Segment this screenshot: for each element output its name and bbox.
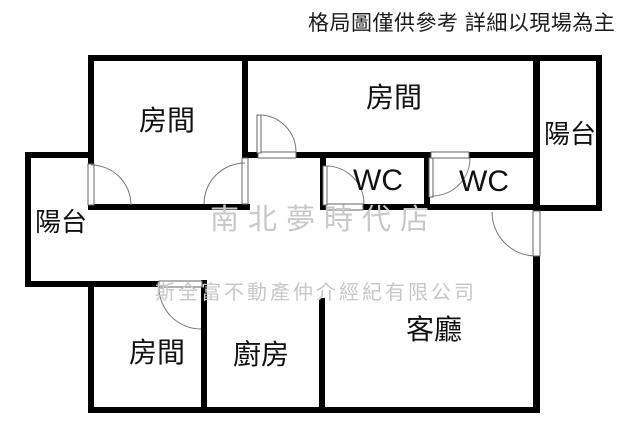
door-bedroom1 bbox=[204, 158, 248, 204]
door-arc bbox=[259, 115, 296, 152]
room-label-kitchen: 廚房 bbox=[233, 341, 289, 369]
wall-segment-top bbox=[88, 55, 602, 61]
wall-segment-balcony-left-top bbox=[25, 152, 94, 158]
wall-segment-right-lower bbox=[533, 256, 540, 413]
door-balcony-left bbox=[88, 164, 131, 205]
door-opening bbox=[533, 211, 540, 256]
door-leaf bbox=[257, 115, 261, 153]
wall-segment-balcony-left-wall bbox=[25, 152, 31, 287]
floor-plan-image: 格局圖僅供參考 詳細以現場為主 南北夢時代店 斯全富不動產仲介經紀有限公司 房間… bbox=[0, 0, 640, 448]
wall-segment-bed1-bed2-divider bbox=[242, 55, 248, 152]
wall-segment-bed3-top bbox=[88, 281, 160, 287]
wall-segment-bottom bbox=[88, 407, 540, 413]
room-label-bedroom-bottom: 房間 bbox=[129, 339, 185, 367]
wall-segment-bed1-left bbox=[88, 55, 94, 165]
room-label-wc-right: WC bbox=[459, 167, 509, 197]
room-label-bedroom-top-left: 房間 bbox=[139, 107, 195, 135]
wall-segment-right-upper bbox=[533, 55, 540, 212]
room-label-balcony-left: 陽台 bbox=[35, 209, 87, 235]
watermark-company-name: 斯全富不動產仲介經紀有限公司 bbox=[155, 283, 477, 303]
room-label-bedroom-top-right: 房間 bbox=[366, 84, 422, 112]
door-leaf bbox=[323, 166, 327, 205]
door-bedroom2 bbox=[257, 115, 296, 158]
room-label-balcony-right: 陽台 bbox=[544, 121, 596, 147]
door-arc bbox=[204, 163, 245, 204]
door-opening bbox=[88, 164, 94, 205]
disclaimer-text: 格局圖僅供參考 詳細以現場為主 bbox=[308, 13, 608, 34]
wall-segment-balcony-right-bottom bbox=[533, 205, 602, 211]
door-opening bbox=[258, 152, 296, 158]
wall-segment-bed2-bottom-b bbox=[296, 152, 432, 158]
watermark-store-name: 南北夢時代店 bbox=[210, 206, 438, 235]
wall-segment-balcony-right-wall bbox=[596, 55, 602, 211]
door-arc bbox=[492, 212, 536, 256]
door-leaf bbox=[429, 158, 433, 197]
room-label-living-room: 客廳 bbox=[406, 316, 462, 344]
wall-segment-kitchen-living-divider bbox=[319, 298, 325, 413]
door-opening bbox=[242, 158, 248, 204]
room-label-wc-left: WC bbox=[353, 166, 403, 196]
wall-segment-balcony-left-bottom bbox=[25, 281, 91, 287]
wall-segment-bed2-bottom-c bbox=[468, 152, 540, 158]
door-opening bbox=[431, 152, 469, 158]
door-arc bbox=[91, 165, 131, 205]
door-main-entry bbox=[492, 211, 540, 256]
wall-segment-left-lower bbox=[88, 281, 94, 413]
wall-segment-bed2-bottom-a bbox=[242, 152, 259, 158]
